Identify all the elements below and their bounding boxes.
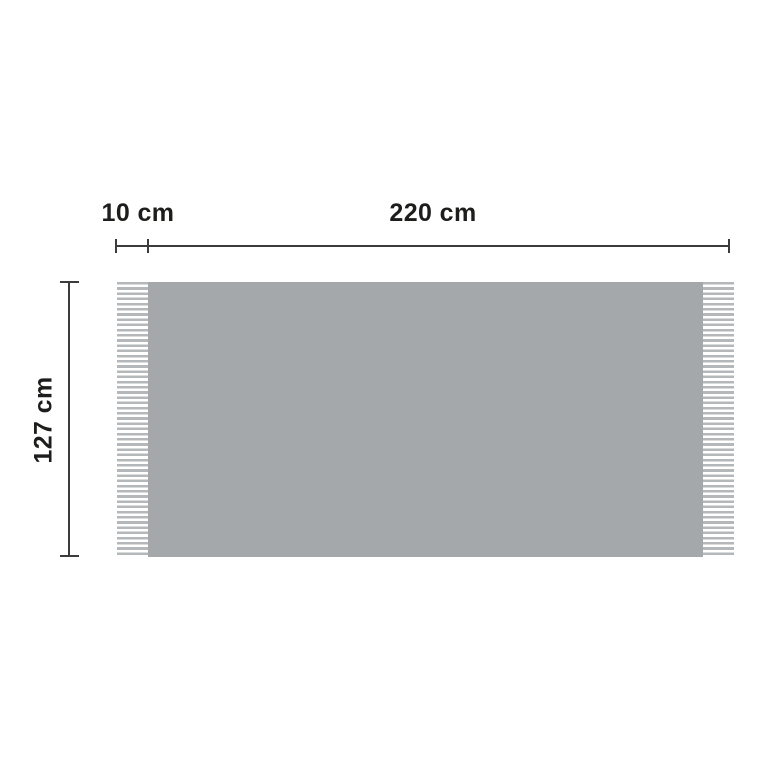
dimension-tick-start	[115, 239, 117, 253]
dimension-tick-top	[60, 281, 79, 283]
height-dimension-line	[68, 281, 70, 557]
blanket-dimension-diagram: 10 cm 220 cm 127 cm	[0, 0, 768, 768]
right-fringe	[703, 282, 734, 557]
fringe-width-label: 10 cm	[102, 200, 175, 228]
total-width-label: 220 cm	[389, 200, 476, 228]
dimension-tick-fringe	[147, 239, 149, 253]
dimension-tick-bottom	[60, 555, 79, 557]
height-label: 127 cm	[30, 376, 58, 463]
width-dimension-line	[115, 245, 730, 247]
left-fringe	[117, 282, 148, 557]
blanket-body	[148, 282, 703, 557]
dimension-tick-end	[728, 239, 730, 253]
